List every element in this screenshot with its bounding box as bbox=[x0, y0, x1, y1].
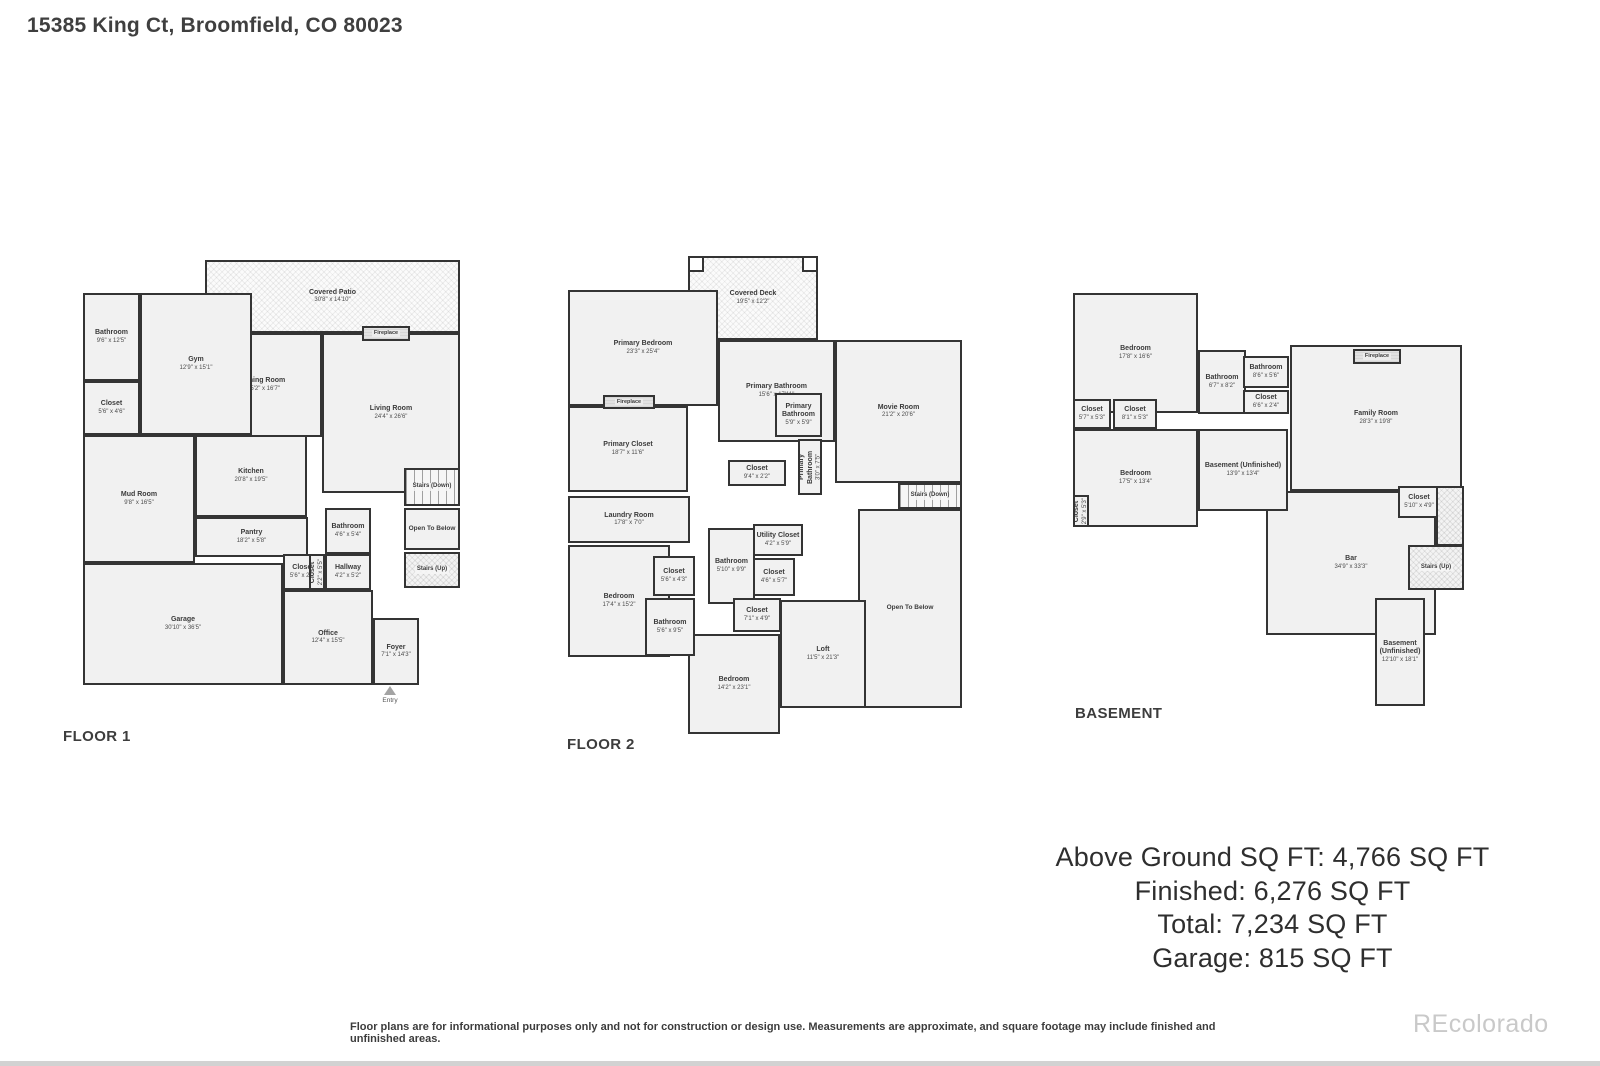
floor-label-basement: BASEMENT bbox=[1075, 705, 1162, 722]
summary-line-above-ground: Above Ground SQ FT: 4,766 SQ FT bbox=[1000, 841, 1545, 875]
room-label: Bedroom17'5" x 13'4" bbox=[1119, 470, 1152, 486]
room-label: Bathroom4'6" x 5'4" bbox=[331, 523, 364, 539]
room-label: Foyer7'1" x 14'3" bbox=[381, 644, 411, 660]
room-label: Closet5'7" x 5'3" bbox=[1079, 406, 1105, 422]
room-bathroom: Bathroom4'6" x 5'4" bbox=[325, 508, 371, 554]
room-label: Basement (Unfinished)13'9" x 13'4" bbox=[1205, 462, 1281, 478]
fireplace: Fireplace bbox=[603, 395, 655, 409]
room-label: Kitchen20'8" x 19'5" bbox=[235, 468, 268, 484]
room-bedroom: Bedroom17'8" x 16'6" bbox=[1073, 293, 1198, 413]
room-label: Closet9'4" x 2'2" bbox=[744, 465, 770, 481]
room-bedroom: Bedroom14'2" x 23'1" bbox=[688, 634, 780, 734]
room-label: Bathroom8'6" x 5'6" bbox=[1249, 364, 1282, 380]
room-label: Living Room24'4" x 26'6" bbox=[370, 405, 412, 421]
room-label: Primary Bathroom3'0" x 7'5" bbox=[798, 441, 822, 493]
summary-line-total: Total: 7,234 SQ FT bbox=[1000, 908, 1545, 942]
room-label: Bar34'9" x 33'3" bbox=[1335, 555, 1368, 571]
room-label: Primary Closet18'7" x 11'6" bbox=[603, 441, 652, 457]
room-label: Movie Room21'2" x 20'6" bbox=[878, 404, 920, 420]
room-label: Closet8'1" x 5'3" bbox=[1122, 406, 1148, 422]
room-label: Loft11'5" x 21'3" bbox=[807, 646, 839, 662]
room-closet: Closet6'6" x 2'4" bbox=[1243, 390, 1289, 414]
room-closet: Closet9'4" x 2'2" bbox=[728, 460, 786, 486]
room-label: Hallway4'2" x 5'2" bbox=[335, 564, 361, 580]
room-garage: Garage30'10" x 36'5" bbox=[83, 563, 283, 685]
room-label: Gym12'9" x 15'1" bbox=[180, 356, 213, 372]
room-label: Stairs (Up) bbox=[415, 566, 449, 574]
room-label: Bathroom6'7" x 8'2" bbox=[1205, 374, 1238, 390]
room-stairs-down: Stairs (Down) bbox=[898, 483, 962, 509]
room-label: Pantry18'2" x 5'8" bbox=[237, 529, 267, 545]
room-label: Bedroom17'8" x 16'6" bbox=[1119, 345, 1152, 361]
room-label: Mud Room9'8" x 16'5" bbox=[121, 491, 157, 507]
room-primary-bathroom: Primary Bathroom3'0" x 7'5" bbox=[798, 439, 822, 495]
room-bathroom: Bathroom9'6" x 12'5" bbox=[83, 293, 140, 381]
room-label: Garage30'10" x 36'5" bbox=[165, 616, 201, 632]
entry-arrow-icon bbox=[384, 686, 396, 695]
deck-post bbox=[802, 256, 818, 272]
room-label: Stairs (Down) bbox=[411, 483, 454, 491]
room-closet: Closet2'9" x 5'3" bbox=[1073, 495, 1089, 527]
room-kitchen: Kitchen20'8" x 19'5" bbox=[195, 435, 307, 517]
room-office: Office12'4" x 15'5" bbox=[283, 590, 373, 685]
room-label: Basement (Unfinished)12'10" x 18'1" bbox=[1377, 640, 1423, 665]
room-label: Office12'4" x 15'5" bbox=[312, 630, 345, 646]
room-label: Utility Closet4'2" x 5'9" bbox=[757, 532, 800, 548]
summary-line-garage: Garage: 815 SQ FT bbox=[1000, 942, 1545, 976]
room-closet: Closet7'1" x 4'9" bbox=[733, 598, 781, 632]
room-closet: Closet4'6" x 5'7" bbox=[753, 558, 795, 596]
square-footage-summary: Above Ground SQ FT: 4,766 SQ FT Finished… bbox=[1000, 841, 1545, 975]
room-laundry-room: Laundry Room17'8" x 7'0" bbox=[568, 496, 690, 543]
room-primary-bedroom: Primary Bedroom23'3" x 25'4" bbox=[568, 290, 718, 406]
room-loft: Loft11'5" x 21'3" bbox=[780, 600, 866, 708]
room-basement-unfinished: Basement (Unfinished)12'10" x 18'1" bbox=[1375, 598, 1425, 706]
room-label: Covered Deck19'5" x 12'2" bbox=[730, 290, 777, 306]
fireplace: Fireplace bbox=[1353, 349, 1401, 364]
room-closet: Closet5'7" x 5'3" bbox=[1073, 399, 1111, 429]
fireplace: Fireplace bbox=[362, 326, 410, 341]
watermark-recolorado: REcolorado bbox=[1413, 1010, 1549, 1039]
room-closet: Closet8'1" x 5'3" bbox=[1113, 399, 1157, 429]
room-label: Closet7'1" x 4'9" bbox=[744, 607, 770, 623]
entry-label: Entry bbox=[382, 697, 397, 705]
summary-line-finished: Finished: 6,276 SQ FT bbox=[1000, 875, 1545, 909]
disclaimer-text: Floor plans are for informational purpos… bbox=[350, 1021, 1250, 1045]
room-label: Family Room28'3" x 19'8" bbox=[1354, 410, 1398, 426]
room-basement-unfinished: Basement (Unfinished)13'9" x 13'4" bbox=[1198, 429, 1288, 511]
room-entry: Entry bbox=[378, 686, 402, 706]
room-hallway: Hallway4'2" x 5'2" bbox=[325, 554, 371, 590]
room-label: Fireplace bbox=[615, 399, 643, 406]
room-label: Closet5'10" x 4'9" bbox=[1404, 494, 1434, 510]
bottom-edge-strip bbox=[0, 1061, 1600, 1066]
room-label: Stairs (Down) bbox=[909, 492, 952, 500]
room-bathroom: Bathroom8'6" x 5'6" bbox=[1243, 356, 1289, 388]
floorplan-page: 15385 King Ct, Broomfield, CO 80023 Cove… bbox=[0, 0, 1600, 1066]
room-open-to-below: Open To Below bbox=[404, 508, 460, 550]
room-label: Primary Bedroom23'3" x 25'4" bbox=[614, 340, 673, 356]
room-family-room: Family Room28'3" x 19'8" bbox=[1290, 345, 1462, 491]
room-label: Laundry Room17'8" x 7'0" bbox=[604, 512, 653, 528]
room-stairs-up: Stairs (Up) bbox=[1408, 545, 1464, 590]
room-label: Closet2'9" x 5'3" bbox=[1073, 498, 1089, 524]
room-bathroom: Bathroom6'7" x 8'2" bbox=[1198, 350, 1246, 414]
room-label: Covered Patio30'8" x 14'10" bbox=[309, 289, 356, 305]
room-label: Bedroom14'2" x 23'1" bbox=[718, 676, 751, 692]
room-gym: Gym12'9" x 15'1" bbox=[140, 293, 252, 435]
room-label: Fireplace bbox=[372, 330, 400, 337]
room-closet: Closet5'6" x 4'3" bbox=[653, 556, 695, 596]
room-primary-closet: Primary Closet18'7" x 11'6" bbox=[568, 406, 688, 492]
room-closet: Closet2'2" x 5'5" bbox=[309, 554, 325, 590]
floor-label-floor-2: FLOOR 2 bbox=[567, 736, 635, 753]
room-bathroom: Bathroom5'10" x 9'9" bbox=[708, 528, 755, 604]
room-label: Primary Bathroom5'9" x 5'9" bbox=[777, 403, 820, 428]
room-stairs-down: Stairs (Down) bbox=[404, 468, 460, 506]
room-label: Bathroom5'6" x 9'5" bbox=[653, 619, 686, 635]
room-label: Bathroom9'6" x 12'5" bbox=[95, 329, 128, 345]
room-label: Open To Below bbox=[409, 525, 456, 533]
room-pantry: Pantry18'2" x 5'8" bbox=[195, 517, 308, 557]
room-label: Closet5'6" x 4'3" bbox=[661, 568, 687, 584]
room-bedroom: Bedroom17'5" x 13'4" bbox=[1073, 429, 1198, 527]
room-label: Stairs (Up) bbox=[1419, 564, 1453, 572]
room-bathroom: Bathroom5'6" x 9'5" bbox=[645, 598, 695, 656]
room-label: Bedroom17'4" x 15'2" bbox=[603, 593, 636, 609]
room-label: Bathroom5'10" x 9'9" bbox=[715, 558, 748, 574]
room-label: Fireplace bbox=[1363, 353, 1391, 360]
room-open-to-below: Open To Below bbox=[858, 509, 962, 708]
deck-post bbox=[688, 256, 704, 272]
room-utility-closet: Utility Closet4'2" x 5'9" bbox=[753, 524, 803, 556]
room-mud-room: Mud Room9'8" x 16'5" bbox=[83, 435, 195, 563]
room-stairs-up: Stairs (Up) bbox=[404, 552, 460, 588]
room-stairs-hatch bbox=[1436, 486, 1464, 546]
room-label: Closet2'2" x 5'5" bbox=[309, 559, 325, 585]
floor-label-floor-1: FLOOR 1 bbox=[63, 728, 131, 745]
room-foyer: Foyer7'1" x 14'3" bbox=[373, 618, 419, 685]
room-primary-bathroom: Primary Bathroom5'9" x 5'9" bbox=[775, 393, 822, 437]
room-movie-room: Movie Room21'2" x 20'6" bbox=[835, 340, 962, 483]
room-label: Closet6'6" x 2'4" bbox=[1253, 394, 1279, 410]
room-label: Closet5'6" x 4'6" bbox=[98, 400, 124, 416]
room-label: Open To Below bbox=[887, 604, 934, 612]
room-closet: Closet5'10" x 4'9" bbox=[1398, 486, 1440, 518]
room-label: Closet4'6" x 5'7" bbox=[761, 569, 787, 585]
room-closet: Closet5'6" x 4'6" bbox=[83, 381, 140, 435]
